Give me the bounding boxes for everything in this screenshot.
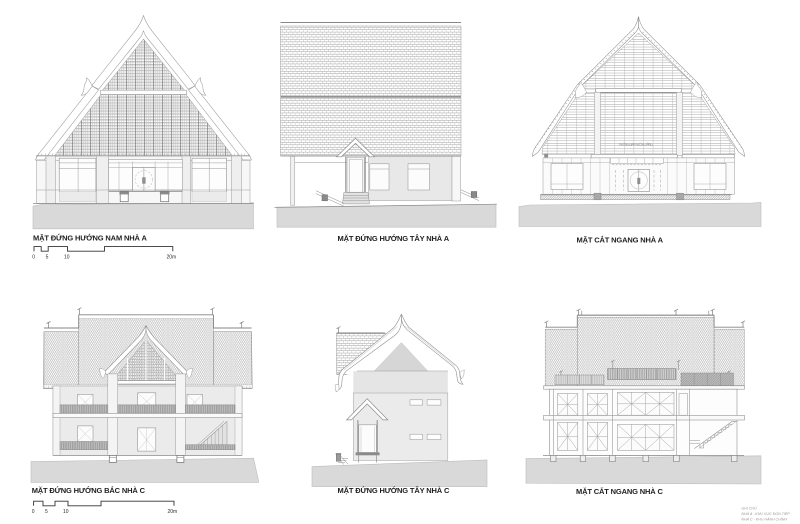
svg-text:MẶT ĐỨNG HƯỚNG TÂY NHÀ A: MẶT ĐỨNG HƯỚNG TÂY NHÀ A bbox=[338, 234, 450, 243]
svg-text:5: 5 bbox=[46, 255, 49, 261]
svg-text:20m: 20m bbox=[168, 509, 178, 515]
svg-text:NHÀ C - KHU HÀNH CHÍNH: NHÀ C - KHU HÀNH CHÍNH bbox=[741, 517, 787, 521]
svg-text:0: 0 bbox=[32, 509, 35, 515]
svg-text:KHÔNG GIAN THÔNG TẦNG: KHÔNG GIAN THÔNG TẦNG bbox=[619, 142, 653, 147]
svg-text:MẶT CẮT NGANG NHÀ C: MẶT CẮT NGANG NHÀ C bbox=[576, 487, 663, 496]
svg-text:GHI CHÚ: GHI CHÚ bbox=[741, 506, 757, 511]
svg-text:10: 10 bbox=[64, 255, 70, 261]
svg-text:20m: 20m bbox=[167, 255, 177, 261]
svg-text:MẶT CẮT NGANG NHÀ A: MẶT CẮT NGANG NHÀ A bbox=[577, 236, 664, 245]
svg-text:MẶT ĐỨNG HƯỚNG BẮC NHÀ C: MẶT ĐỨNG HƯỚNG BẮC NHÀ C bbox=[32, 486, 146, 495]
svg-text:5: 5 bbox=[45, 509, 48, 515]
svg-text:10: 10 bbox=[63, 509, 69, 515]
svg-text:NHÀ A - KHU VỰC ĐÓN TIẾP: NHÀ A - KHU VỰC ĐÓN TIẾP bbox=[741, 511, 790, 516]
svg-text:MẶT ĐỨNG HƯỚNG NAM NHÀ A: MẶT ĐỨNG HƯỚNG NAM NHÀ A bbox=[33, 234, 147, 243]
svg-text:0: 0 bbox=[32, 255, 35, 261]
svg-text:MẶT ĐỨNG HƯỚNG TÂY NHÀ C: MẶT ĐỨNG HƯỚNG TÂY NHÀ C bbox=[338, 486, 451, 495]
